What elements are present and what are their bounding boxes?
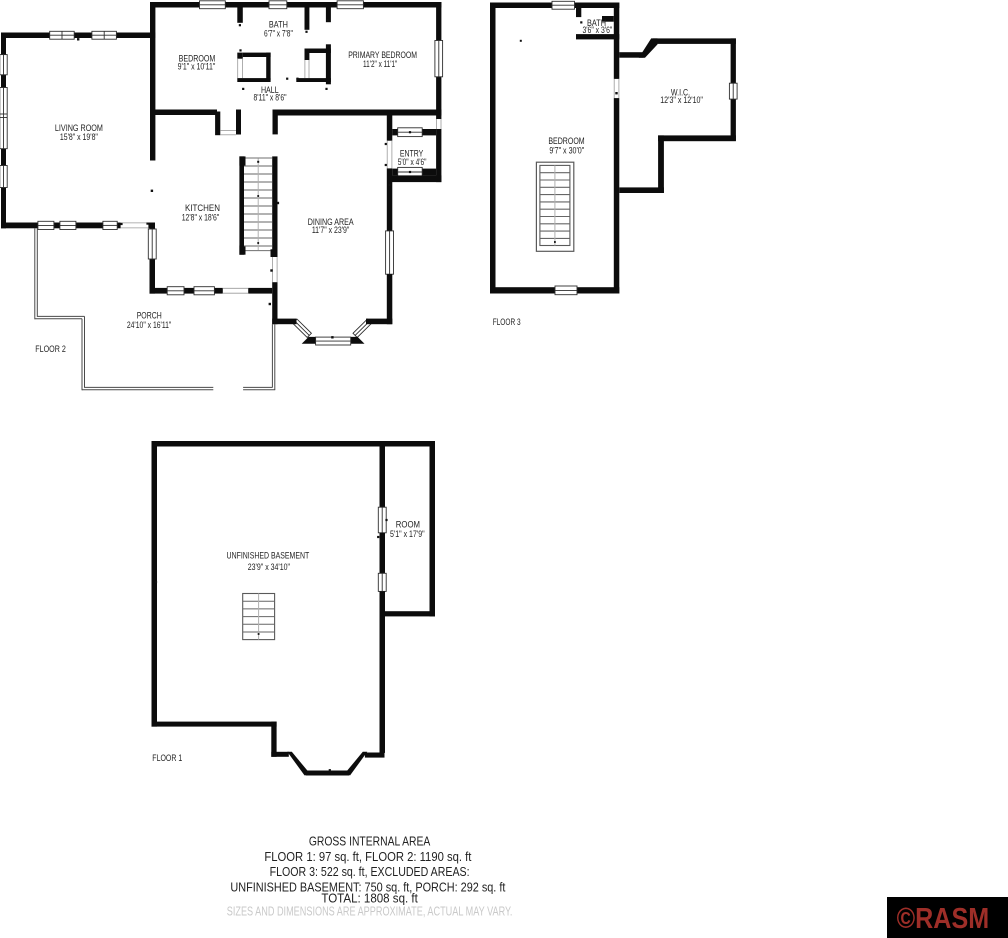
svg-text:SIZES AND DIMENSIONS ARE APPRO: SIZES AND DIMENSIONS ARE APPROXIMATE, AC… <box>227 903 513 918</box>
svg-text:9'7" x 30'0": 9'7" x 30'0" <box>549 145 584 156</box>
svg-text:3'6" x 3'6": 3'6" x 3'6" <box>582 24 612 35</box>
svg-text:9'1" x 10'11": 9'1" x 10'11" <box>178 60 216 71</box>
svg-text:FLOOR 3: 522 sq. ft, EXCLUDED: FLOOR 3: 522 sq. ft, EXCLUDED AREAS: <box>270 864 470 879</box>
svg-text:5'0" x 4'6": 5'0" x 4'6" <box>398 156 427 167</box>
svg-text:23'9" x 34'10": 23'9" x 34'10" <box>248 561 290 572</box>
svg-text:5'1" x 17'9": 5'1" x 17'9" <box>390 528 425 539</box>
svg-text:12'8" x 18'6": 12'8" x 18'6" <box>182 211 220 222</box>
svg-text:11'7" x 23'9": 11'7" x 23'9" <box>312 224 350 235</box>
svg-text:15'8" x 19'8": 15'8" x 19'8" <box>60 131 98 142</box>
svg-text:11'2" x 11'1": 11'2" x 11'1" <box>363 58 397 69</box>
svg-text:6'7" x 7'8": 6'7" x 7'8" <box>264 28 293 39</box>
svg-text:GROSS INTERNAL AREA: GROSS INTERNAL AREA <box>309 834 431 849</box>
svg-text:UNFINISHED BASEMENT: UNFINISHED BASEMENT <box>227 549 310 560</box>
svg-text:8'11" x 8'6": 8'11" x 8'6" <box>253 91 286 102</box>
svg-text:FLOOR 2: FLOOR 2 <box>35 343 66 354</box>
svg-text:©RASM: ©RASM <box>897 903 990 935</box>
svg-text:FLOOR 1: 97 sq. ft, FLOOR 2: 1: FLOOR 1: 97 sq. ft, FLOOR 2: 1190 sq. ft <box>264 849 471 864</box>
svg-text:FLOOR 1: FLOOR 1 <box>152 752 182 763</box>
svg-text:FLOOR 3: FLOOR 3 <box>493 316 521 327</box>
svg-text:12'3" x 12'10": 12'3" x 12'10" <box>660 94 703 105</box>
svg-text:24'10" x 16'11": 24'10" x 16'11" <box>127 319 172 330</box>
